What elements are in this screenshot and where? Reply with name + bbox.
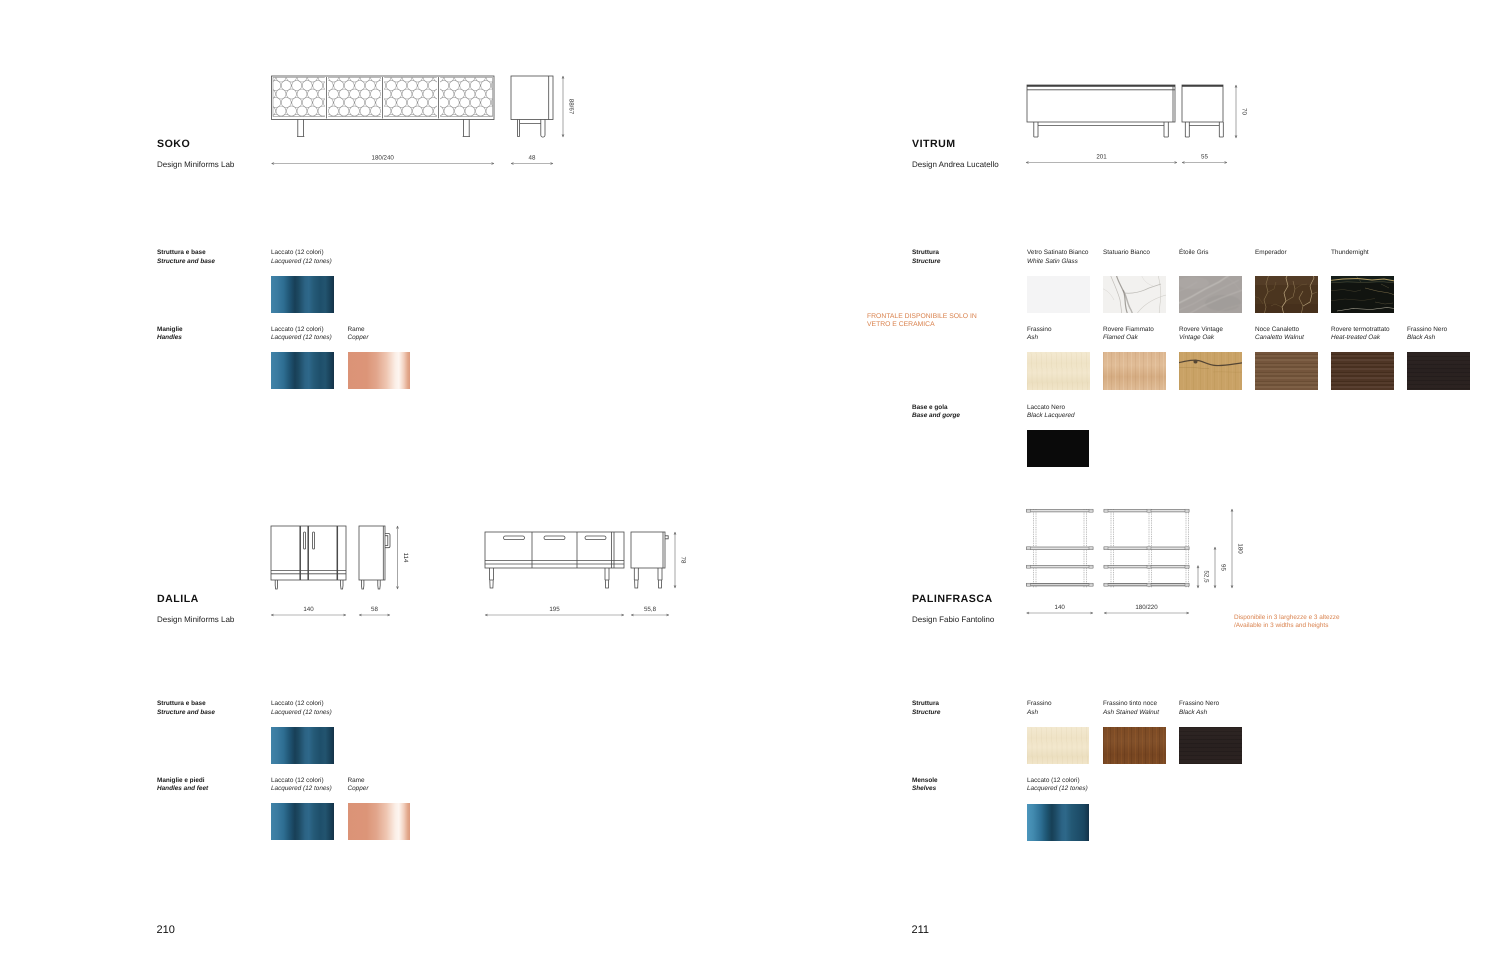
svg-text:70: 70 [1241, 108, 1248, 115]
svg-text:95: 95 [1220, 564, 1227, 571]
svg-text:48: 48 [529, 155, 536, 162]
svg-text:180/240: 180/240 [372, 155, 395, 162]
svg-text:114: 114 [402, 553, 409, 563]
svg-text:55,8: 55,8 [644, 606, 657, 613]
svg-text:180: 180 [1237, 543, 1244, 554]
svg-text:201: 201 [1096, 154, 1107, 161]
svg-text:88/67: 88/67 [568, 99, 575, 115]
svg-text:78: 78 [680, 557, 687, 564]
svg-text:180/220: 180/220 [1135, 604, 1158, 611]
svg-text:52,5: 52,5 [1203, 570, 1210, 583]
svg-text:58: 58 [371, 606, 378, 613]
svg-text:140: 140 [303, 606, 314, 613]
svg-text:140: 140 [1055, 604, 1066, 611]
svg-text:55: 55 [1201, 154, 1208, 161]
svg-text:195: 195 [549, 606, 560, 613]
